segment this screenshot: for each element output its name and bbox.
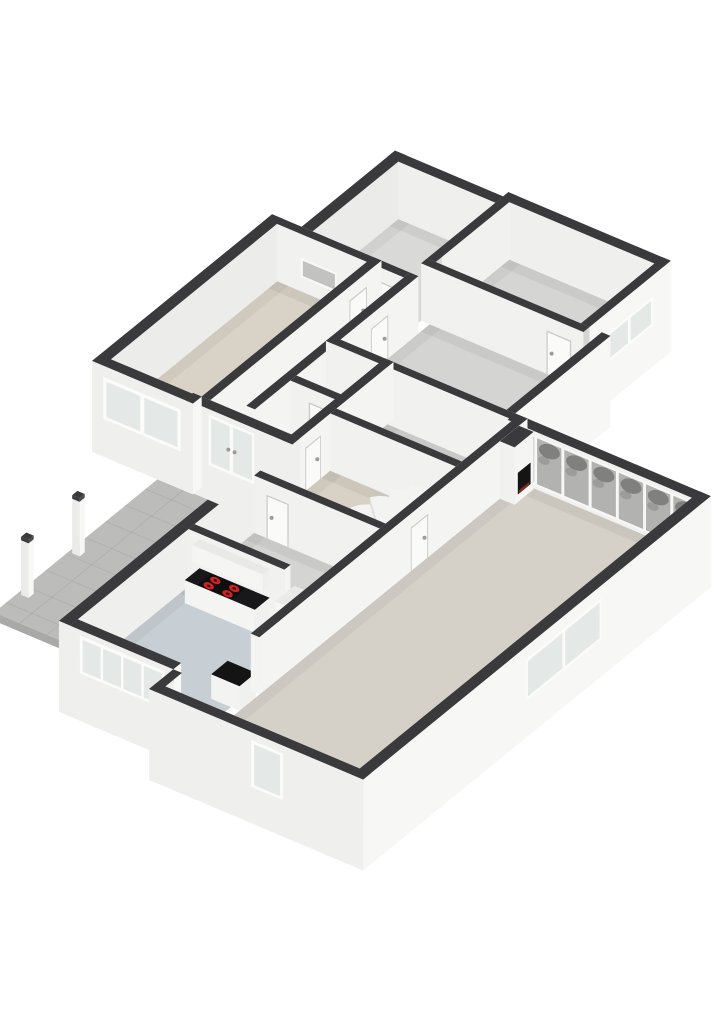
bedroom-right-door-handle — [550, 352, 554, 356]
fireplace-column-front — [500, 441, 515, 505]
hall-door-handle — [383, 337, 387, 341]
back-hall-door-handle — [270, 516, 274, 520]
french-door-handle — [233, 450, 237, 454]
french-door-glass — [211, 418, 230, 471]
floor-plan-render — [0, 0, 724, 1024]
fence-post-1-side — [29, 539, 34, 598]
stair-room-door-handle — [315, 457, 319, 461]
living-room-door-handle — [423, 536, 427, 540]
fence-post-1-front — [21, 540, 28, 598]
floorplan-3d-view — [0, 0, 724, 1024]
jog-wall — [193, 397, 202, 495]
french-door-handle — [226, 448, 230, 452]
living-nw-wall-end — [251, 634, 260, 695]
terrace-side-wall-end — [59, 621, 70, 717]
back-hall-door — [268, 497, 288, 547]
fence-post-2-side — [80, 498, 85, 557]
french-door-glass — [233, 428, 252, 481]
fence-post-2-front — [72, 499, 79, 557]
